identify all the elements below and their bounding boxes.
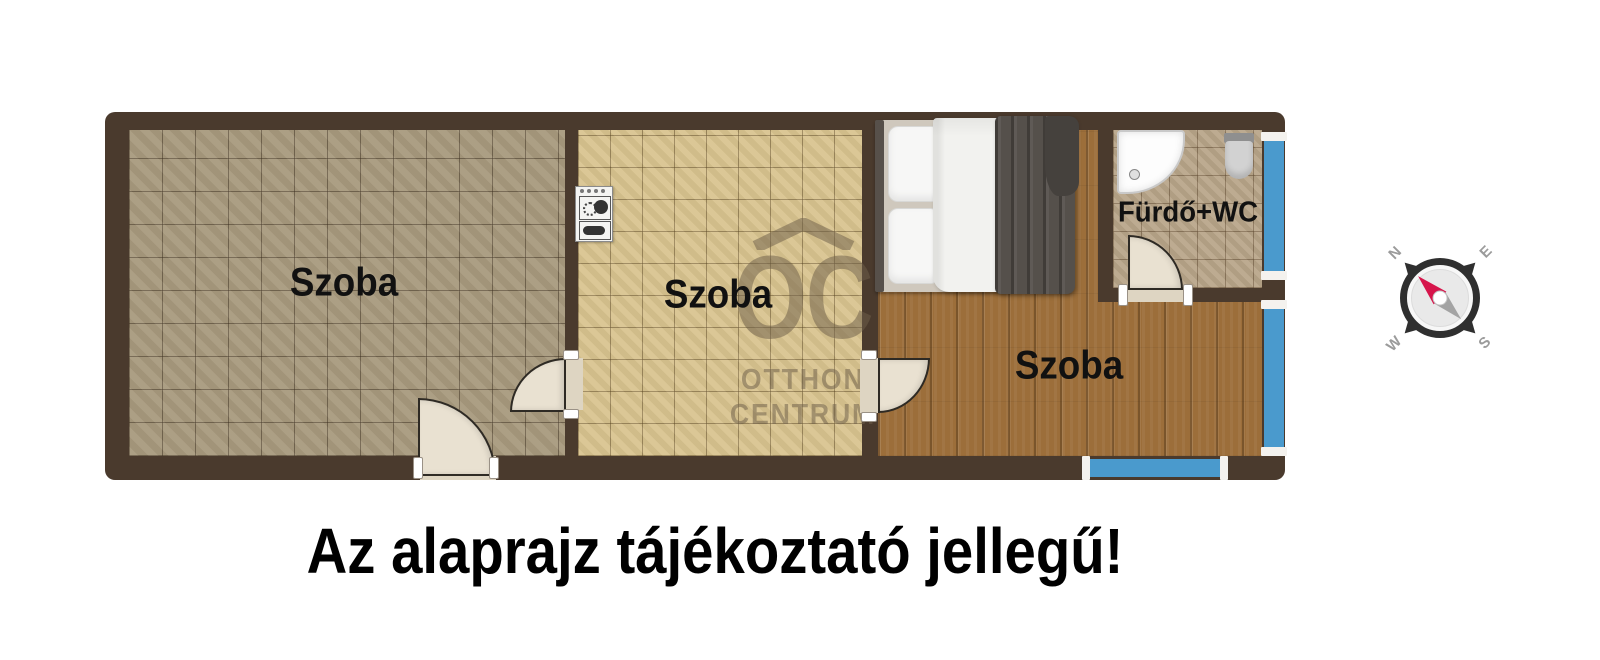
window-cap [1261,132,1287,141]
toilet-icon [1224,133,1254,179]
window-cap [1261,300,1287,309]
bed [875,120,1072,292]
toilet-bowl [1225,141,1253,179]
compass-label-w: W [1383,333,1405,355]
window-cap [1261,271,1287,280]
stove-burners [579,196,611,220]
watermark-line1: OTTHON [741,363,865,398]
door-opening-bathroom [1125,288,1185,302]
room-label-left: Szoba [290,261,398,306]
bed-headboard [875,120,884,292]
door-jamb [563,409,579,419]
room-label-middle: Szoba [664,273,772,318]
bed-blanket-fold [1045,116,1079,196]
door-opening-middle-bedroom [860,358,880,413]
compass-label-s: S [1475,333,1494,352]
door-jamb [413,457,423,479]
window-cap [1082,456,1090,480]
bed-blanket [995,116,1075,294]
stove-knobs [580,189,608,194]
stove-icon [575,186,613,242]
compass-label-e: E [1476,242,1495,261]
window-cap [1261,447,1287,456]
door-jamb [861,412,877,422]
window-bedroom-south [1089,459,1221,477]
floor-plan: OC OTTHON CENTRUM [105,112,1285,480]
compass-icon: N E S W [1381,239,1500,358]
window-east-1 [1264,140,1284,272]
door-jamb [489,457,499,479]
door-opening-left-middle [563,358,583,410]
window-cap [1220,456,1228,480]
shower-drain [1129,169,1140,180]
watermark-line2: CENTRUM [730,398,876,433]
room-label-bedroom: Szoba [1015,344,1123,389]
door-jamb [861,350,877,360]
door-jamb [1183,284,1193,306]
room-label-bathroom: Fürdő+WC [1118,197,1258,230]
stove-oven [579,221,611,240]
bathroom-left-wall [1098,112,1113,302]
window-east-2 [1264,308,1284,448]
door-jamb [1118,284,1128,306]
disclaimer-text: Az alaprajz tájékoztató jellegű! [307,514,1124,588]
compass-label-n: N [1385,243,1405,263]
door-jamb [563,350,579,360]
